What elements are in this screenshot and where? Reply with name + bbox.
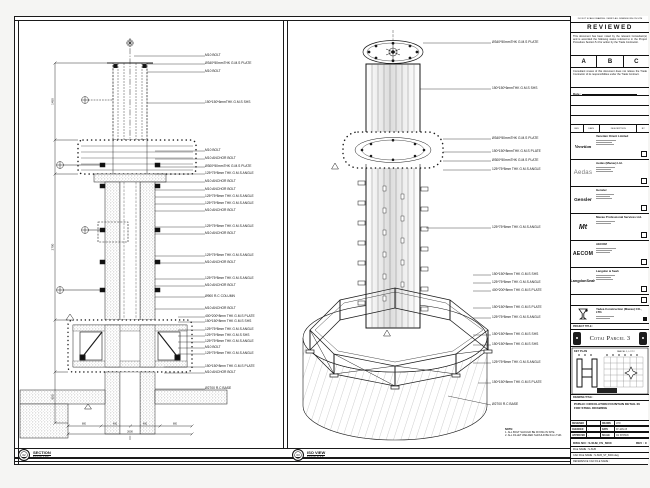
callout-label: M10 ANCHOR BOLT: [205, 307, 236, 311]
date-col: DATE: [584, 125, 600, 132]
dwg-number: DWG NO : S-SUB_FS_6000: [573, 441, 612, 444]
callout-label: 150*150*8mm THK G.M.S SHS: [492, 343, 538, 347]
view-bubble: 02: [18, 449, 30, 461]
callout-label: 125*75*8mm THK G.M.S ANGLE: [205, 172, 254, 176]
checked-label: CHECKED: [571, 427, 587, 432]
callout-label: 150*150*8mmTHK G.M.S PLATE: [492, 150, 541, 154]
langdonseah-logo: LangdonSeah: [571, 268, 595, 294]
callout-label: M10 BOLT: [205, 70, 221, 74]
stamp-checkbox[interactable]: [641, 259, 647, 265]
venetian-logo: Venetian: [571, 133, 595, 159]
callout-label: 125*75*8mm THK G.M.S ANGLE: [205, 277, 254, 281]
blank-row: [571, 116, 649, 125]
approved-value: -: [587, 433, 601, 438]
section-drawing: 1450 2700 800 800 400 400 800 2600: [14, 16, 284, 448]
stamp-checkbox[interactable]: [641, 151, 647, 157]
key-plan: KEY PLAN PARCEL 1, LOT 2: [571, 347, 649, 395]
callout-label: M10 ANCHOR BOLT: [205, 261, 236, 265]
gensler-logo: Gensler: [571, 187, 595, 213]
key-plan-parcel-label: PARCEL 1, LOT 2: [617, 350, 635, 353]
contractor-logo-icon: [571, 306, 595, 323]
blank-row: [571, 96, 649, 106]
callout-label: 150*150*8mm THK G.M.S PLATE: [492, 381, 542, 385]
aedas-logo: Aedas: [571, 160, 595, 186]
callout-label: 125*75*8mm THK G.M.S ANGLE: [205, 202, 254, 206]
view-scale: SCALE N.T.S: [307, 456, 325, 459]
callout-label: M10 ANCHOR BOLT: [205, 188, 236, 192]
company-name: Langdon & Seah: [596, 270, 648, 273]
reviewed-stamp-title: REVIEWED: [571, 23, 649, 33]
section-view-label: 02 SECTION SCALE 1:50: [18, 449, 51, 461]
callout-label: 125*75*8mm THK G.M.S ANGLE: [492, 168, 541, 172]
callout-label: M10 BOLT: [205, 149, 221, 153]
base-assembly: [66, 314, 192, 372]
general-notes: NOTE: 1. ALL BOLT SHOULD BE FIXING IN SI…: [505, 428, 567, 437]
dim-height-3: 800: [51, 394, 55, 399]
callout-label: 150*150*8mm THK G.M.S SHS: [492, 333, 538, 337]
contractor-box: Yadea Construction (Macau) CO., LTD.: [571, 306, 649, 324]
iso-view-label: 03 ISO VIEW SCALE N.T.S: [292, 449, 325, 461]
status-option-b[interactable]: B: [597, 56, 623, 67]
mps-logo: Mt: [571, 214, 595, 240]
callout-label: 150*150*6mmTHK G.M.S SHS: [492, 87, 537, 91]
aecom-logo: AECOM: [571, 241, 595, 267]
callout-label: 150*150*8mm THK G.M.S PLATE: [205, 365, 255, 369]
dim-height-2: 2700: [51, 243, 55, 250]
callout-label: M10 ANCHOR BOLT: [205, 284, 236, 288]
reference-file-row: REFERENCE CAD FILE NAME :: [571, 459, 649, 464]
dim-b2: 400: [113, 423, 118, 426]
contractor-name: Yadea Construction (Macau) CO., LTD.: [596, 308, 648, 314]
callout-label: 125*75*8mm THK G.M.S ANGLE: [492, 281, 541, 285]
date-field-label: DATE: [601, 427, 615, 432]
foundation: [20, 372, 227, 438]
company-box-venetian: Venetian Venetian Orient Limited: [571, 133, 649, 160]
title-block: DO NOT SCALE DRAWING. VERIFY ALL DIMENSI…: [570, 16, 648, 464]
callout-label: M10 BOLT: [205, 346, 221, 350]
company-box-gensler: Gensler Gensler: [571, 187, 649, 214]
title-block-top-note: DO NOT SCALE DRAWING. VERIFY ALL DIMENSI…: [571, 16, 649, 23]
reviewed-date-row: Date :: [571, 88, 649, 96]
company-name: AECOM: [596, 243, 648, 246]
callout-label: 400*200*8mm THK G.M.S PLATE: [492, 289, 542, 293]
callout-label: M10 ANCHOR BOLT: [205, 157, 236, 161]
dim-b3: 400: [143, 423, 148, 426]
drawn-label: DRAWN: [601, 421, 615, 426]
company-name: Aedas (Macau) Ltd.: [596, 162, 648, 165]
callout-label: M10 BOLT: [205, 54, 221, 58]
stamp-checkbox[interactable]: [641, 205, 647, 211]
drawing-sheet: 1450 2700 800 800 400 400 800 2600 M10 B…: [0, 0, 650, 488]
top-plate: [363, 30, 423, 64]
dwg-number-row: DWG NO : S-SUB_FS_6000 REV : C: [571, 439, 649, 447]
project-title-text: Cotai Parcel 3: [590, 335, 631, 342]
company-name: Gensler: [596, 189, 648, 192]
flange-plate: [94, 174, 166, 182]
callout-label: Ø300*50mmTHK G.M.S PLATE: [492, 159, 538, 163]
callout-label: Ø340*50mmTHK G.M.S PLATE: [492, 41, 538, 45]
date-value: 07-JAN-15: [615, 427, 649, 432]
date-blank-line[interactable]: [582, 90, 637, 95]
callout-label: 150*150*8mm THK G.M.S SHS: [492, 273, 538, 277]
dim-b4: 800: [173, 423, 178, 426]
key-plan-drawing: KEY PLAN PARCEL 1, LOT 2: [571, 347, 649, 395]
view-scale: SCALE 1:50: [33, 456, 51, 459]
callout-label: M10 ANCHOR BOLT: [205, 371, 236, 375]
designed-value: [587, 421, 601, 426]
rev-col: REV: [571, 125, 584, 132]
filled-checkbox: [643, 317, 647, 321]
callout-label: Ø340*50mmTHK G.M.S PLATE: [492, 137, 538, 141]
description-col: DESCRIPTION: [600, 125, 638, 132]
designed-label: DESIGNED: [571, 421, 587, 426]
revision-code: REV : C: [636, 441, 647, 444]
column-shaft: [105, 182, 155, 320]
stamp-checkbox[interactable]: [641, 286, 647, 292]
status-option-a[interactable]: A: [571, 56, 597, 67]
dim-total: 2600: [127, 430, 133, 434]
stamp-checkbox[interactable]: [641, 297, 647, 303]
drawing-title-text: PUBLIC CIRCULATION FOUNTAIN DETAIL IN FO…: [571, 401, 649, 421]
scale-value: AS SHOWN: [615, 433, 649, 438]
callout-label: 125*75*8mm THK G.M.S SHS: [205, 334, 249, 338]
callout-label: Ø2700 R.C BASE: [205, 387, 231, 391]
panel-divider-2: [287, 20, 288, 448]
key-plan-footer-bar: [597, 388, 617, 393]
revision-table-header: REV DATE DESCRIPTION BY: [571, 125, 649, 133]
callout-label: 125*75*8mm THK G.M.S ANGLE: [205, 340, 254, 344]
banner-emblem-right: [639, 332, 647, 345]
callout-label: 150*150*8mm THK G.M.S SHS: [205, 320, 251, 324]
callout-label: 150*150*6mmTHK G.M.S SHS: [205, 101, 250, 105]
checked-value: -: [587, 427, 601, 432]
key-plan-label: KEY PLAN: [574, 349, 587, 353]
company-box-aecom: AECOM AECOM: [571, 241, 649, 268]
callout-label: 125*75*8mm THK G.M.S ANGLE: [205, 328, 254, 332]
dim-b1: 800: [82, 423, 87, 426]
callout-label: M10 ANCHOR BOLT: [205, 209, 236, 213]
banner-emblem-left: [573, 332, 581, 345]
dim-height-1: 1450: [51, 98, 55, 105]
callout-label: 125*75*8mm THK G.M.S ANGLE: [205, 352, 254, 356]
empty-stamp-box: [571, 295, 649, 306]
callout-label: 125*75*8mm THK G.M.S ANGLE: [205, 225, 254, 229]
callout-label: Ø2700 R.C BASE: [492, 403, 518, 407]
callout-label: 125*75*8mm THK G.M.S ANGLE: [205, 254, 254, 258]
scale-label: SCALE: [601, 433, 615, 438]
callout-label: 125*75*8mm THK G.M.S ANGLE: [492, 316, 541, 320]
note-line: 2. ALL FILLET WELDED SHOULD BE 6mm THK.: [505, 434, 567, 437]
callout-label: M10 ANCHOR BOLT: [205, 232, 236, 236]
company-box-langdonseah: LangdonSeah Langdon & Seah: [571, 268, 649, 295]
detail-markers: [57, 97, 89, 294]
callout-label: 125*75*8mm THK G.M.S ANGLE: [205, 195, 254, 199]
callout-label: M10 ANCHOR BOLT: [205, 180, 236, 184]
company-box-aedas: Aedas Aedas (Macau) Ltd.: [571, 160, 649, 187]
callout-label: 150*150*8mm THK G.M.S PLATE: [492, 306, 542, 310]
reviewed-paragraph-1: This document has been noted by the rele…: [571, 33, 649, 56]
company-name: Venetian Orient Limited: [596, 135, 648, 138]
company-name: Macau Professional Services Ltd.: [596, 216, 648, 219]
company-box-mps: Mt Macau Professional Services Ltd.: [571, 214, 649, 241]
top-bolt-marker: [127, 40, 133, 46]
approved-label: APPROVED: [571, 433, 587, 438]
status-option-c[interactable]: C: [624, 56, 649, 67]
cloud-collar: [78, 140, 196, 174]
view-bubble: 03: [292, 449, 304, 461]
frame-bottom-inner: [14, 461, 648, 462]
callout-label: Ø340*50mmTHK G.M.S PLATE: [205, 62, 251, 66]
reviewed-status-options: A B C: [571, 56, 649, 68]
callout-label: Ø300*50mmTHK G.M.S PLATE: [205, 165, 251, 169]
callout-label: 125*75*8mm THK G.M.S ANGLE: [492, 361, 541, 365]
frame-bottom-outer: [14, 464, 648, 465]
project-title-banner: Cotai Parcel 3: [571, 330, 649, 347]
stamp-checkbox[interactable]: [641, 178, 647, 184]
drawn-value: LHO: [615, 421, 649, 426]
callout-label: 125*75*8mm THK G.M.S ANGLE: [492, 226, 541, 230]
blank-row: [571, 106, 649, 116]
by-col: BY: [637, 125, 649, 132]
callout-label: Ø900 R.C COLUMN: [205, 295, 235, 299]
stamp-checkbox[interactable]: [641, 232, 647, 238]
reviewed-paragraph-2: Consultant review of this document does …: [571, 68, 649, 88]
